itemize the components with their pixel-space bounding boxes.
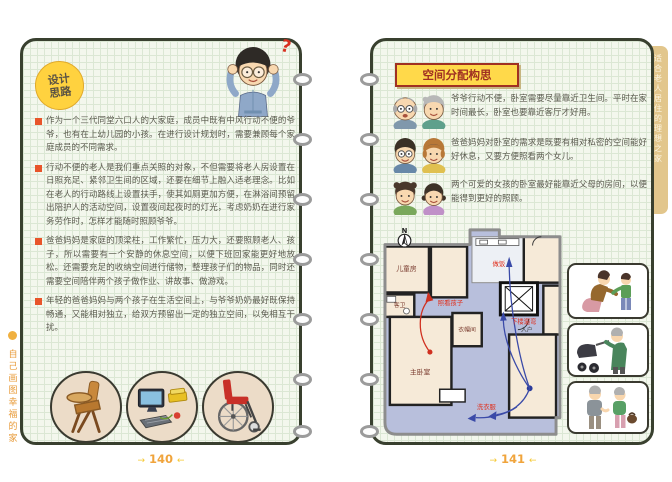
- room-label-master-bedroom: 主卧室: [410, 368, 431, 377]
- annotation-watch-kids: 照看孩子: [438, 298, 464, 307]
- idea-text: 爷爷行动不便，卧室需要尽量靠近卫生间。平时在家时间最长，卧室也要靠近客厅才好用。: [451, 93, 647, 120]
- thinking-boy-illustration: [221, 43, 285, 117]
- left-page-footer: →140←: [20, 452, 302, 466]
- binder-ring: [360, 253, 379, 266]
- elder-pushing-stroller-illustration: [567, 323, 649, 377]
- footer-arrow-icon: →: [489, 456, 497, 466]
- binder-ring: [293, 193, 312, 206]
- binder-ring: [360, 193, 379, 206]
- compass-label: N: [402, 227, 408, 235]
- binder-ring: [293, 373, 312, 386]
- wheelchair-icon: [202, 371, 274, 443]
- footer-arrow-icon: ←: [177, 456, 185, 466]
- book-edge-title: 自己画图幸福的家: [5, 330, 19, 449]
- room-label-cloakroom: 衣帽间: [458, 326, 476, 334]
- question-mark: ?: [279, 36, 293, 58]
- idea-row-grandparents: 爷爷行动不便，卧室需要尽量靠近卫生间。平时在家时间最长，卧室也要靠近客厅才好用。: [389, 93, 647, 129]
- right-page: 空间分配构思 爷爷行动不便，卧室需要尽量靠近卫生间。平时在家时间最长，卧室也要靠…: [370, 38, 654, 445]
- footer-arrow-icon: ←: [529, 456, 537, 466]
- binder-ring: [360, 313, 379, 326]
- left-page: 设计 思路 ? 作为一个三代同堂六口人的大家庭，成员中既有中风行动不便的爷爷，也…: [20, 38, 302, 445]
- idea-text: 爸爸妈妈对卧室的需求是既要有相对私密的空间能好好休息，又要方便照看两个女儿。: [451, 137, 647, 164]
- binder-ring: [293, 253, 312, 266]
- idea-row-parents: 爸爸妈妈对卧室的需求是既要有相对私密的空间能好好休息，又要方便照看两个女儿。: [389, 137, 647, 173]
- chapter-edge-tab-text: 适合老人居住的理想之家: [653, 54, 664, 214]
- design-idea-badge: 设计 思路: [32, 58, 87, 113]
- binder-ring: [293, 73, 312, 86]
- binder-ring: [293, 133, 312, 146]
- idea-text: 两个可爱的女孩的卧室最好能靠近父母的房间，以便能得到更好的照顾。: [451, 179, 647, 206]
- floor-plan-wrap: N 儿童房 客卫 衣帽间 主卧室 入户: [375, 225, 566, 448]
- binder-ring: [360, 373, 379, 386]
- binder-ring: [293, 425, 312, 438]
- annotation-cooking: 做饭: [493, 259, 506, 268]
- annotation-go-downstairs: 下楼遛弯: [511, 317, 536, 326]
- entry-label: 入户: [521, 326, 533, 334]
- section-title: 空间分配构思: [395, 63, 519, 87]
- two-girls-avatars: [389, 179, 451, 215]
- dad-mom-avatars: [389, 137, 451, 173]
- design-note: 年轻的爸爸妈妈与两个孩子在生活空间上，与爷爷奶奶最好既保持畅通，又能相对独立，给…: [35, 295, 295, 336]
- design-note: 行动不便的老人是我们重点关照的对象，不但需要将老人房设置在日照充足、紧邻卫生间的…: [35, 162, 295, 230]
- elderly-couple-walking-illustration: [567, 381, 649, 434]
- binder-ring: [360, 133, 379, 146]
- annotation-laundry: 洗衣服: [477, 402, 497, 411]
- design-notes-list: 作为一个三代同堂六口人的大家庭，成员中既有中风行动不便的爷爷，也有在上幼儿园的小…: [35, 115, 295, 342]
- edge-dot-icon: [8, 331, 17, 340]
- room-label-guest-bath: 客卫: [394, 301, 406, 309]
- baby-high-chair-icon: [50, 371, 122, 443]
- badge-line2: 思路: [49, 84, 72, 100]
- design-note: 作为一个三代同堂六口人的大家庭，成员中既有中风行动不便的爷爷，也有在上幼儿园的小…: [35, 115, 295, 156]
- design-note: 爸爸妈妈是家庭的顶梁柱，工作繁忙，压力大，还要照顾老人、孩子，所以需要有一个安静…: [35, 235, 295, 289]
- book-edge-title-text: 自己画图幸福的家: [6, 349, 19, 445]
- idea-row-daughters: 两个可爱的女孩的卧室最好能靠近父母的房间，以便能得到更好的照顾。: [389, 179, 647, 215]
- binder-ring: [360, 73, 379, 86]
- computer-desk-icon: [126, 371, 198, 443]
- binder-ring: [293, 313, 312, 326]
- grandpa-grandma-avatars: [389, 93, 451, 129]
- right-page-number: 141: [501, 452, 525, 466]
- binder-ring: [360, 425, 379, 438]
- footer-arrow-icon: →: [137, 456, 145, 466]
- left-page-number: 140: [149, 452, 173, 466]
- mother-with-child-illustration: [567, 263, 649, 319]
- floor-plan: N 儿童房 客卫 衣帽间 主卧室 入户: [375, 225, 566, 444]
- room-label-children: 儿童房: [396, 264, 417, 273]
- right-page-footer: →141←: [372, 452, 654, 466]
